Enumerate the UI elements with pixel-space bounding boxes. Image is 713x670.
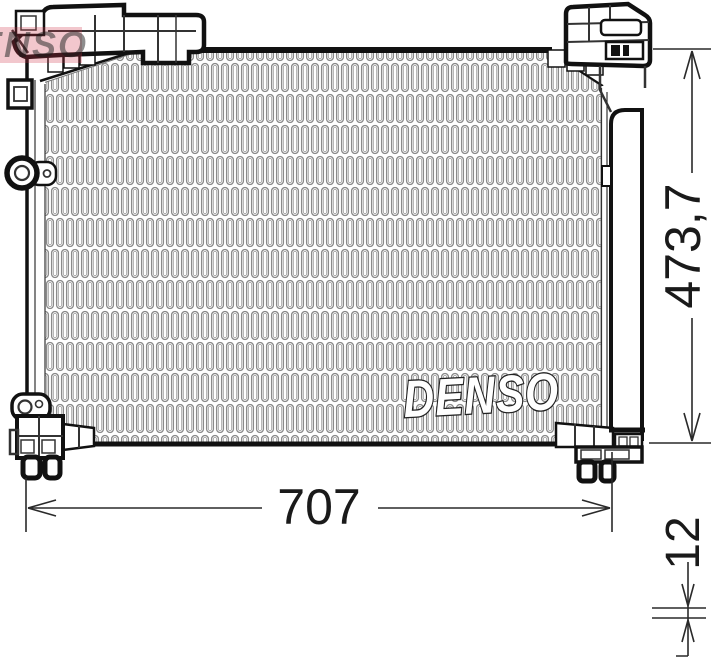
condenser-drawing-svg: DENSO DENSO 473,7 707 12	[0, 0, 713, 670]
corner-watermark: DENSO	[0, 24, 88, 65]
dimension-width: 707	[26, 452, 612, 535]
technical-drawing: DENSO DENSO 473,7 707 12	[0, 0, 713, 670]
mounting-bracket-bottom-right	[556, 423, 645, 481]
dimension-depth: 12	[652, 516, 710, 656]
side-plate-left	[34, 79, 45, 443]
bracket-slot	[623, 45, 629, 56]
pipe-fitting-upper-left	[8, 80, 32, 108]
bracket-slot	[611, 45, 620, 56]
bracket-foot	[23, 457, 40, 478]
brand-watermark: DENSO	[402, 363, 561, 429]
width-dimension-label: 707	[277, 479, 360, 535]
dimension-height: 473,7	[649, 49, 711, 443]
depth-dimension-label: 12	[657, 516, 710, 569]
corner-watermark-text: DENSO	[0, 24, 88, 65]
height-dimension-label: 473,7	[655, 183, 711, 308]
receiver-drier	[602, 86, 647, 442]
bracket-foot	[579, 462, 595, 481]
pipe-fitting-ring-left	[7, 158, 56, 188]
receiver-tab	[602, 166, 611, 186]
denso-logo-text: DENSO	[402, 363, 561, 429]
bracket-foot	[45, 457, 60, 478]
depth-edge-lines	[652, 608, 706, 618]
